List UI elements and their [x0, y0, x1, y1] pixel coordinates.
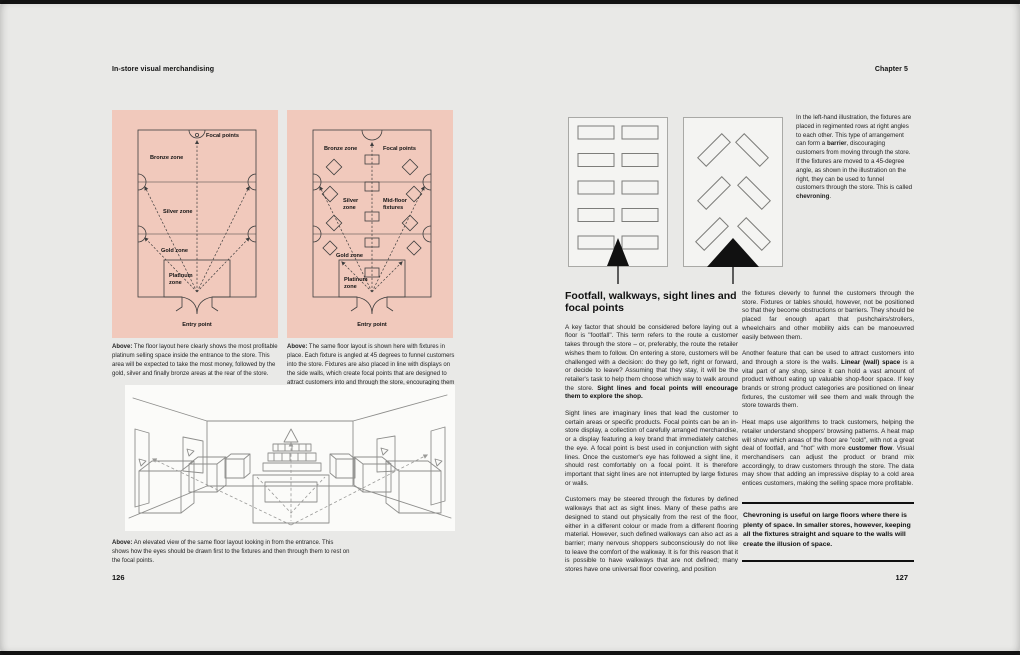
- body-column-2: the fixtures cleverly to funnel the cust…: [742, 290, 914, 562]
- zone-diagram-panel: Focal points Bronze zone Silver zone Gol…: [112, 110, 278, 338]
- photo-edge-top: [0, 0, 1020, 4]
- sight-lines: [320, 143, 424, 292]
- grid-fixtures-drawing: [568, 117, 668, 285]
- caption-label: Above:: [287, 344, 307, 350]
- paragraph: A key factor that should be considered b…: [565, 324, 738, 402]
- caption-sketch: Above: An elevated view of the same floo…: [112, 539, 350, 566]
- margin-note-text: .: [829, 193, 831, 200]
- cube-fixtures-right: [330, 454, 441, 513]
- label-midfloor-1: Mid-floor: [383, 198, 408, 204]
- running-head-left: In-store visual merchandising: [112, 66, 214, 73]
- paragraph: Heat maps use algorithms to track custom…: [742, 419, 914, 489]
- label-silver-zone-1: Silver: [343, 198, 359, 204]
- caption-label: Above:: [112, 540, 132, 546]
- paragraph-bold-text: Linear (wall) space: [841, 359, 900, 366]
- label-gold-zone: Gold zone: [161, 248, 188, 254]
- entry-gap: [357, 294, 387, 300]
- label-entry-point: Entry point: [357, 322, 387, 328]
- sight-lines: [145, 141, 249, 292]
- wall-display-panels: [135, 427, 445, 507]
- label-midfloor-2: fixtures: [383, 205, 403, 211]
- section-heading: Footfall, walkways, sight lines and foca…: [565, 290, 738, 315]
- store-interior-sketch: [125, 385, 455, 531]
- entry-gap: [182, 294, 212, 300]
- page-number-left: 126: [112, 573, 125, 582]
- caption-zone-diagram: Above: The floor layout here clearly sho…: [112, 343, 280, 379]
- store-sketch-drawing: [125, 385, 455, 531]
- label-bronze-zone: Bronze zone: [150, 155, 183, 161]
- cube-fixtures-left: [139, 454, 250, 513]
- label-silver-zone-2: zone: [343, 205, 356, 211]
- paragraph: Sight lines are imaginary lines that lea…: [565, 410, 738, 488]
- margin-note-bold-barrier: barrier: [827, 140, 847, 147]
- caption-text: The floor layout here clearly shows the …: [112, 344, 278, 377]
- fixture-floorplan-diagram: Bronze zone Focal points Silver zone Mid…: [287, 110, 453, 338]
- zone-floorplan-diagram: Focal points Bronze zone Silver zone Gol…: [112, 110, 278, 338]
- paragraph: the fixtures cleverly to funnel the cust…: [742, 290, 914, 342]
- label-focal-points: Focal points: [206, 133, 239, 139]
- chevron-fixtures-drawing: [683, 117, 783, 285]
- label-platinum-zone-2: zone: [344, 284, 357, 290]
- label-focal-points: Focal points: [383, 146, 416, 152]
- paragraph-text: is a vital part of any shop, since it ca…: [742, 359, 914, 410]
- pull-quote: Chevroning is useful on large floors whe…: [742, 502, 914, 562]
- body-column-1: Footfall, walkways, sight lines and foca…: [565, 290, 738, 583]
- caption-text: An elevated view of the same floor layou…: [112, 540, 349, 564]
- label-entry-point: Entry point: [182, 322, 212, 328]
- page-number-right: 127: [895, 573, 908, 582]
- fixture-diagram-panel: Bronze zone Focal points Silver zone Mid…: [287, 110, 453, 338]
- margin-note-bold-chevroning: chevroning: [796, 193, 829, 200]
- label-platinum-zone-1: Platinum: [344, 277, 368, 283]
- label-silver-zone: Silver zone: [163, 209, 193, 215]
- photo-edge-bottom: [0, 651, 1020, 655]
- caption-label: Above:: [112, 344, 132, 350]
- running-head-chapter: Chapter 5: [875, 66, 908, 73]
- margin-note-text: , discouraging customers from moving thr…: [796, 140, 912, 191]
- label-platinum-zone-2: zone: [169, 280, 182, 286]
- paragraph-bold-text: customer flow: [848, 445, 892, 452]
- chevron-fixtures-diagram: [683, 117, 783, 285]
- paragraph: Another feature that can be used to attr…: [742, 350, 914, 411]
- grid-fixtures-diagram: [568, 117, 668, 285]
- label-bronze-zone: Bronze zone: [324, 146, 357, 152]
- label-platinum-zone-1: Platinum: [169, 273, 193, 279]
- margin-note: In the left-hand illustration, the fixtu…: [796, 114, 914, 202]
- paragraph: Customers may be steered through the fix…: [565, 496, 738, 574]
- label-gold-zone: Gold zone: [336, 253, 363, 259]
- paragraph-text: A key factor that should be considered b…: [565, 324, 738, 392]
